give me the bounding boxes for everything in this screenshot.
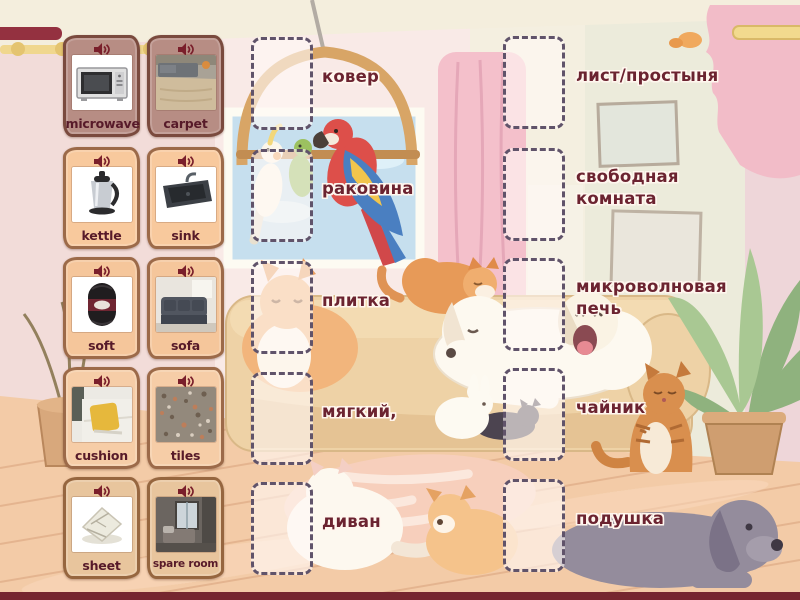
target-label-podushka: подушка xyxy=(576,472,726,565)
word-card-kettle[interactable]: kettle xyxy=(63,147,140,249)
card-label: sheet xyxy=(66,559,138,572)
word-card-microwave[interactable]: microwave xyxy=(63,35,140,137)
speaker-icon[interactable] xyxy=(93,153,110,166)
speaker-icon[interactable] xyxy=(93,41,110,54)
target-label-plitka: плитка xyxy=(322,254,500,347)
drop-zone-right-4[interactable] xyxy=(503,368,565,461)
word-card-sofa[interactable]: sofa xyxy=(147,257,224,359)
yarn-photo xyxy=(72,277,132,332)
word-card-carpet[interactable]: carpet xyxy=(147,35,224,137)
tiles-photo xyxy=(156,387,216,442)
drop-zone-right-3[interactable] xyxy=(503,258,565,351)
card-label: sink xyxy=(150,229,222,242)
target-label-list-prostynya: лист/простыня xyxy=(576,29,726,122)
microwave-photo xyxy=(72,55,132,110)
kettle-photo xyxy=(72,167,132,222)
drop-zone-middle-4[interactable] xyxy=(251,372,313,465)
target-label-mikrovolnovaya-pech: микроволновая печь xyxy=(576,251,726,344)
speaker-icon[interactable] xyxy=(177,153,194,166)
card-label: microwave xyxy=(66,117,138,130)
drop-zone-right-5[interactable] xyxy=(503,479,565,572)
carpet-photo xyxy=(156,55,216,110)
bottom-bar xyxy=(0,592,800,600)
speaker-icon[interactable] xyxy=(93,483,110,496)
card-label: soft xyxy=(66,339,138,352)
speaker-icon[interactable] xyxy=(177,483,194,496)
card-label: sofa xyxy=(150,339,222,352)
word-card-cushion[interactable]: cushion xyxy=(63,367,140,469)
drop-zone-middle-1[interactable] xyxy=(251,37,313,130)
drop-zone-right-1[interactable] xyxy=(503,36,565,129)
word-card-sink[interactable]: sink xyxy=(147,147,224,249)
card-label: spare room xyxy=(150,559,222,570)
target-label-rakovina: раковина xyxy=(322,142,500,235)
target-label-myagkiy: мягкий, xyxy=(322,365,500,458)
target-label-kover: ковер xyxy=(322,30,500,123)
word-card-tiles[interactable]: tiles xyxy=(147,367,224,469)
drop-zone-right-2[interactable] xyxy=(503,148,565,241)
card-label: carpet xyxy=(150,117,222,130)
word-card-spare-room[interactable]: spare room xyxy=(147,477,224,579)
card-label: tiles xyxy=(150,449,222,462)
drop-zone-middle-5[interactable] xyxy=(251,482,313,575)
cushion-photo xyxy=(72,387,132,442)
card-label: kettle xyxy=(66,229,138,242)
sink-photo xyxy=(156,167,216,222)
speaker-icon[interactable] xyxy=(93,373,110,386)
word-card-sheet[interactable]: sheet xyxy=(63,477,140,579)
matchup-game-stage: microwave carpet kettle sink xyxy=(0,0,800,600)
word-card-soft[interactable]: soft xyxy=(63,257,140,359)
target-label-svobodnaya-komnata: свободная комната xyxy=(576,141,726,234)
drop-zone-middle-3[interactable] xyxy=(251,261,313,354)
speaker-icon[interactable] xyxy=(177,41,194,54)
speaker-icon[interactable] xyxy=(177,373,194,386)
sheet-photo xyxy=(72,497,132,552)
speaker-icon[interactable] xyxy=(177,263,194,276)
speaker-icon[interactable] xyxy=(93,263,110,276)
target-label-divan: диван xyxy=(322,475,500,568)
spare-room-photo xyxy=(156,497,216,552)
target-label-chaynik: чайник xyxy=(576,361,726,454)
drop-zone-middle-2[interactable] xyxy=(251,149,313,242)
sofa-photo xyxy=(156,277,216,332)
card-label: cushion xyxy=(66,449,138,462)
